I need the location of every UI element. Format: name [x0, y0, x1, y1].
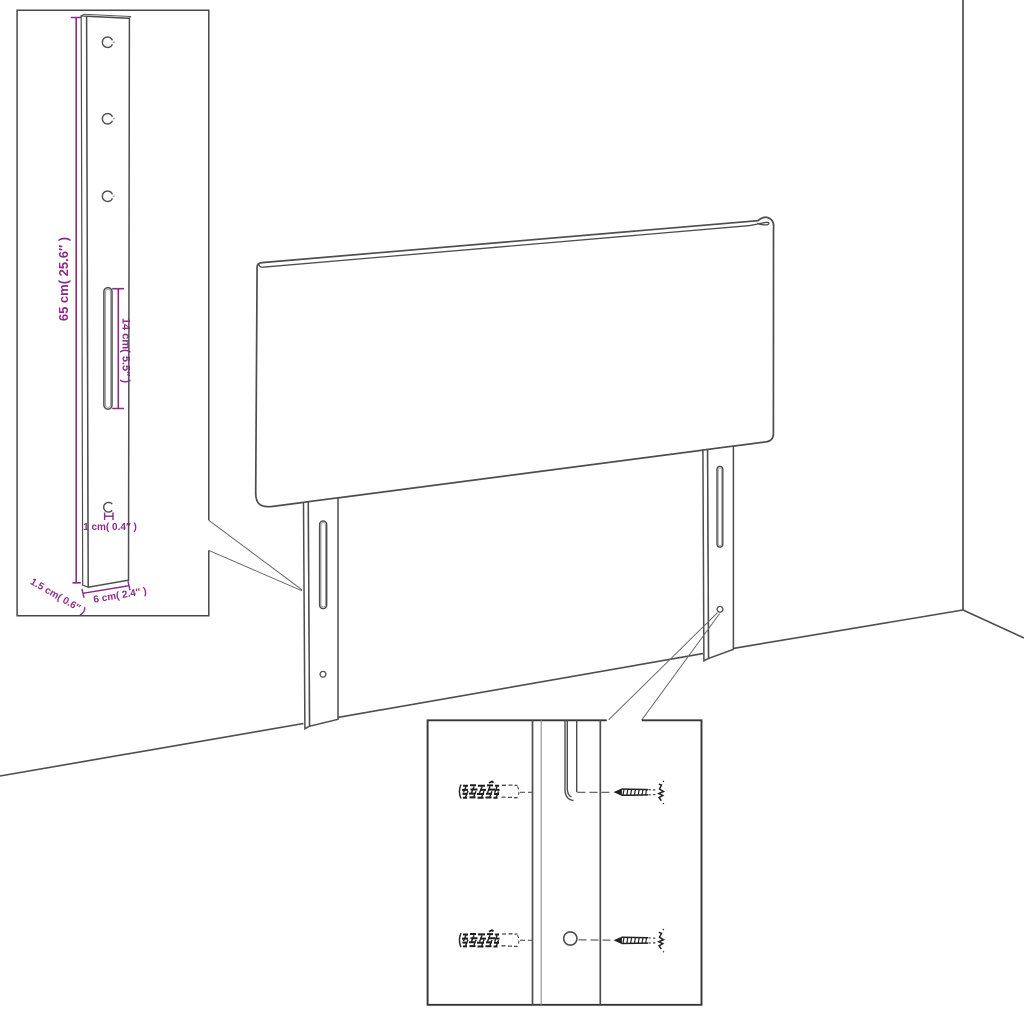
svg-text:14 cm( 5.5″ ): 14 cm( 5.5″ )	[120, 318, 132, 384]
svg-text:65 cm( 25.6″ ): 65 cm( 25.6″ )	[56, 237, 71, 321]
svg-text:1 cm( 0.4″ ): 1 cm( 0.4″ )	[83, 522, 137, 533]
